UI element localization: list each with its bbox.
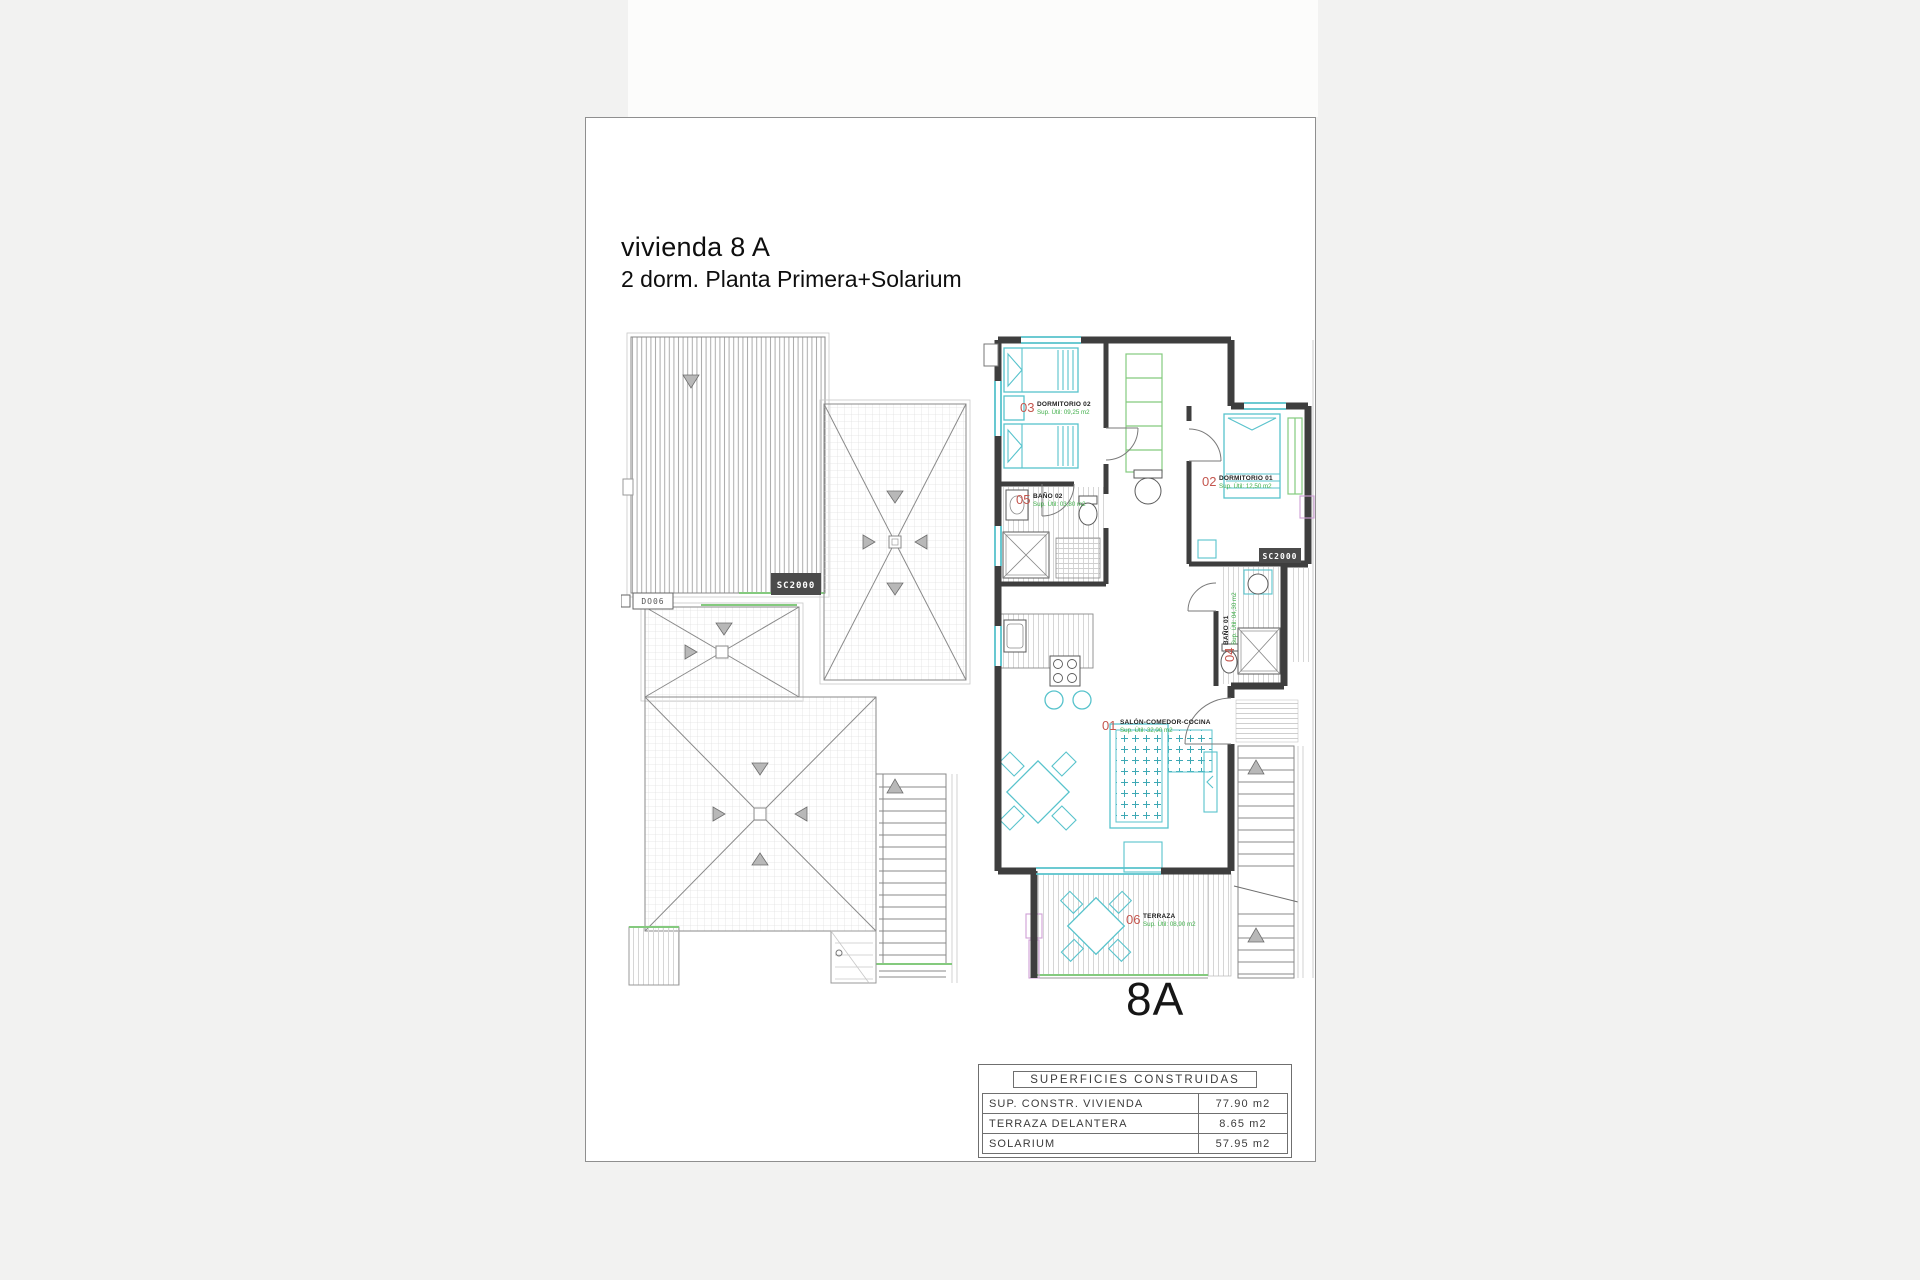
row-value: 57.95 m2	[1198, 1134, 1287, 1153]
room-label-dormitorio-02: 03 DORMITORIO 02 Sup. Útil: 09,25 m2	[1020, 400, 1091, 416]
svg-text:06: 06	[1126, 912, 1140, 927]
drawing-sheet: vivienda 8 A 2 dorm. Planta Primera+Sola…	[585, 117, 1316, 1162]
floor-carpentry-text: SC2000	[1263, 552, 1298, 561]
table-row: SUP. CONSTR. VIVIENDA 77.90 m2	[983, 1094, 1287, 1113]
svg-text:04: 04	[1222, 648, 1237, 662]
svg-text:SALÓN-COMEDOR-COCINA: SALÓN-COMEDOR-COCINA	[1120, 717, 1211, 726]
row-value: 8.65 m2	[1198, 1114, 1287, 1133]
svg-text:Sup. Útil: 03,80 m2: Sup. Útil: 03,80 m2	[1033, 501, 1086, 508]
carpentry-code-text: SC2000	[777, 581, 816, 591]
svg-text:DORMITORIO 01: DORMITORIO 01	[1219, 475, 1273, 482]
svg-text:Sup. Útil: 32,00 m2: Sup. Útil: 32,00 m2	[1120, 727, 1173, 734]
svg-text:Sup. Útil: 12,50 m2: Sup. Útil: 12,50 m2	[1219, 483, 1272, 490]
svg-text:BAÑO 02: BAÑO 02	[1033, 491, 1063, 500]
svg-text:Sup. Útil: 08,90 m2: Sup. Útil: 08,90 m2	[1143, 921, 1196, 928]
roof-appendix	[629, 927, 679, 985]
title-line-2: 2 dorm. Planta Primera+Solarium	[621, 266, 962, 292]
table-row: SOLARIUM 57.95 m2	[983, 1133, 1287, 1153]
areas-table: SUPERFICIES CONSTRUIDAS SUP. CONSTR. VIV…	[978, 1064, 1292, 1158]
row-value: 77.90 m2	[1198, 1094, 1287, 1113]
exterior-stairs	[1234, 746, 1303, 978]
hall-fittings	[1126, 354, 1162, 504]
svg-text:DORMITORIO 02: DORMITORIO 02	[1037, 401, 1091, 408]
svg-text:Sup. Útil: 09,25 m2: Sup. Útil: 09,25 m2	[1037, 409, 1090, 416]
title-line-1: vivienda 8 A	[621, 232, 962, 263]
scan-white-band	[628, 0, 1318, 117]
row-label: SOLARIUM	[983, 1134, 1198, 1153]
dormitorio-02-furniture	[1004, 348, 1078, 468]
svg-text:05: 05	[1016, 492, 1030, 507]
svg-text:02: 02	[1202, 474, 1216, 489]
solarium-pergola	[623, 333, 829, 597]
areas-table-header: SUPERFICIES CONSTRUIDAS	[982, 1068, 1288, 1090]
salon-furniture	[1000, 724, 1217, 872]
svg-text:Sup. Útil: 04,30 m2: Sup. Útil: 04,30 m2	[1231, 592, 1238, 645]
row-label: SUP. CONSTR. VIVIENDA	[983, 1094, 1198, 1113]
hip-roof-middle	[641, 603, 803, 701]
kitchen-counter	[1001, 614, 1093, 709]
svg-text:01: 01	[1102, 718, 1116, 733]
first-floor-plan: SC2000 03 DORMITORIO 02 Sup. Útil: 09,25…	[976, 326, 1316, 1001]
roof-access-text: DO06	[641, 597, 664, 606]
roof-access-badge: DO06	[621, 593, 673, 609]
table-row: TERRAZA DELANTERA 8.65 m2	[983, 1113, 1287, 1133]
hip-roof-lower	[645, 697, 876, 931]
roof-solarium-plan: SC2000 DO06	[621, 331, 971, 991]
areas-table-header-text: SUPERFICIES CONSTRUIDAS	[1013, 1071, 1257, 1088]
row-label: TERRAZA DELANTERA	[983, 1114, 1198, 1133]
hip-roof-upper	[820, 400, 970, 684]
areas-table-body: SUP. CONSTR. VIVIENDA 77.90 m2 TERRAZA D…	[982, 1093, 1288, 1154]
svg-text:03: 03	[1020, 400, 1034, 415]
carpentry-code-badge: SC2000	[771, 573, 821, 595]
sheet-title: vivienda 8 A 2 dorm. Planta Primera+Sola…	[621, 232, 962, 292]
svg-text:TERRAZA: TERRAZA	[1143, 913, 1176, 920]
unit-label: 8A	[1126, 972, 1184, 1026]
svg-text:BAÑO 01: BAÑO 01	[1221, 615, 1230, 645]
